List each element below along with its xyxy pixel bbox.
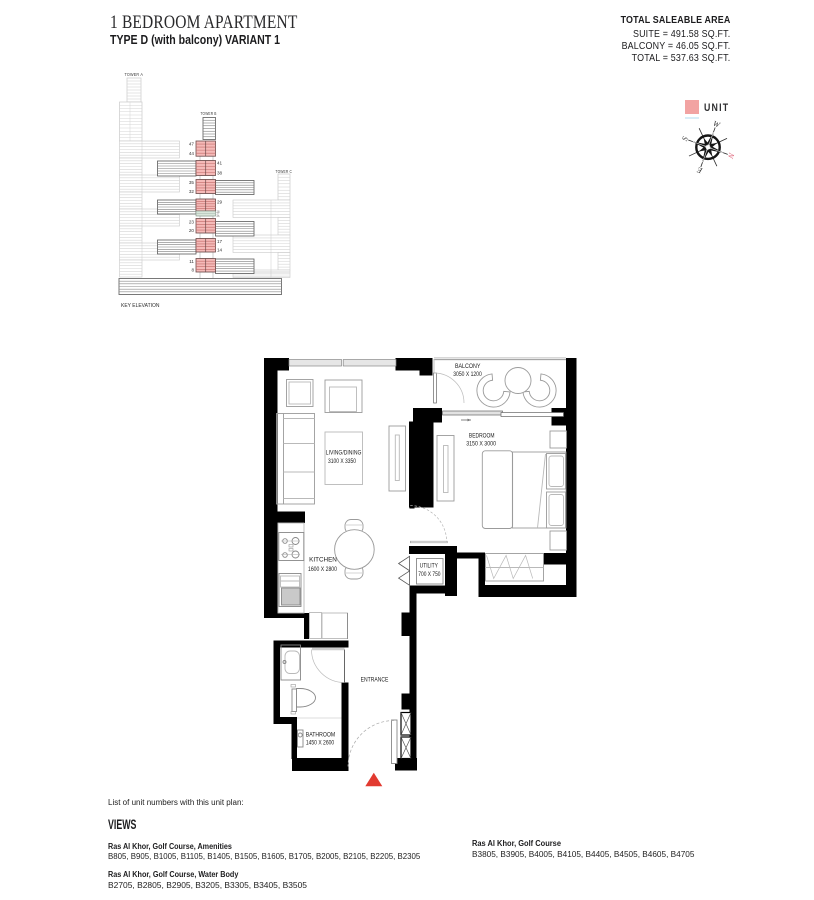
svg-text:N: N — [726, 151, 737, 161]
svg-text:29: 29 — [217, 200, 223, 205]
svg-text:14: 14 — [217, 248, 223, 253]
svg-text:1450 X 2600: 1450 X 2600 — [306, 739, 335, 746]
svg-text:23: 23 — [189, 219, 195, 224]
svg-text:KEY ELEVATION: KEY ELEVATION — [121, 303, 160, 309]
svg-text:UTILITY: UTILITY — [420, 562, 439, 569]
svg-text:700 X 750: 700 X 750 — [418, 571, 441, 578]
svg-text:TOWER A: TOWER A — [125, 72, 144, 77]
svg-text:44: 44 — [189, 151, 195, 156]
svg-text:BALCONY: BALCONY — [455, 363, 481, 370]
svg-text:TOWER C: TOWER C — [276, 169, 293, 174]
svg-text:3150 X 3000: 3150 X 3000 — [466, 440, 496, 447]
svg-text:32: 32 — [189, 189, 195, 194]
svg-text:35: 35 — [189, 180, 195, 185]
svg-text:26: 26 — [217, 214, 220, 218]
svg-text:BEDROOM: BEDROOM — [469, 433, 495, 440]
svg-text:E: E — [696, 165, 705, 176]
svg-text:8: 8 — [191, 267, 194, 272]
svg-text:41: 41 — [217, 160, 223, 165]
svg-text:ENTRANCE: ENTRANCE — [361, 677, 389, 684]
svg-text:17: 17 — [217, 239, 223, 244]
svg-text:3050 X 1200: 3050 X 1200 — [453, 371, 482, 378]
svg-text:S: S — [680, 135, 690, 142]
svg-text:1600 X 2800: 1600 X 2800 — [308, 566, 337, 573]
svg-text:KITCHEN: KITCHEN — [309, 557, 337, 564]
svg-text:3100 X 3350: 3100 X 3350 — [328, 458, 356, 465]
svg-text:BATHROOM: BATHROOM — [306, 732, 336, 739]
svg-text:W: W — [712, 119, 723, 130]
svg-text:38: 38 — [217, 171, 223, 176]
svg-text:LIVING/DINING: LIVING/DINING — [326, 450, 362, 457]
svg-text:47: 47 — [189, 141, 195, 146]
svg-text:TOWER B: TOWER B — [201, 111, 217, 116]
svg-text:20: 20 — [189, 228, 195, 233]
svg-text:11: 11 — [189, 259, 194, 264]
